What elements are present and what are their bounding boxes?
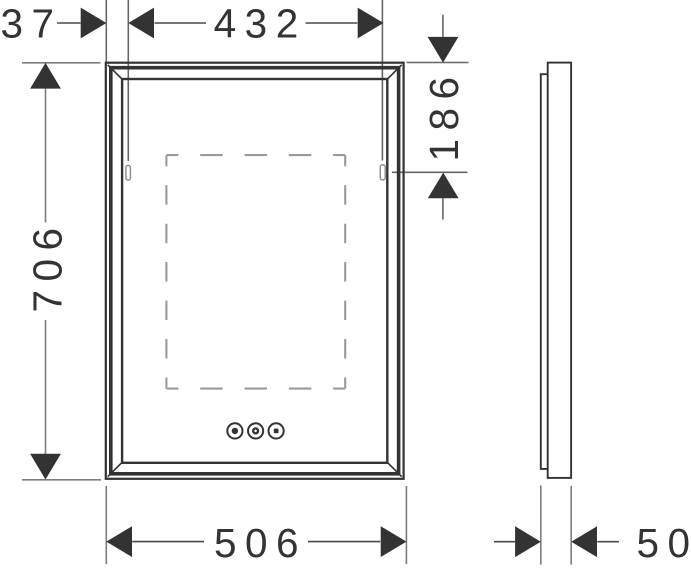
svg-text:432: 432 xyxy=(214,0,307,46)
svg-text:506: 506 xyxy=(214,520,307,566)
svg-text:706: 706 xyxy=(24,219,70,312)
svg-text:37: 37 xyxy=(1,0,63,46)
svg-text:50: 50 xyxy=(636,520,691,566)
svg-text:186: 186 xyxy=(421,68,467,161)
